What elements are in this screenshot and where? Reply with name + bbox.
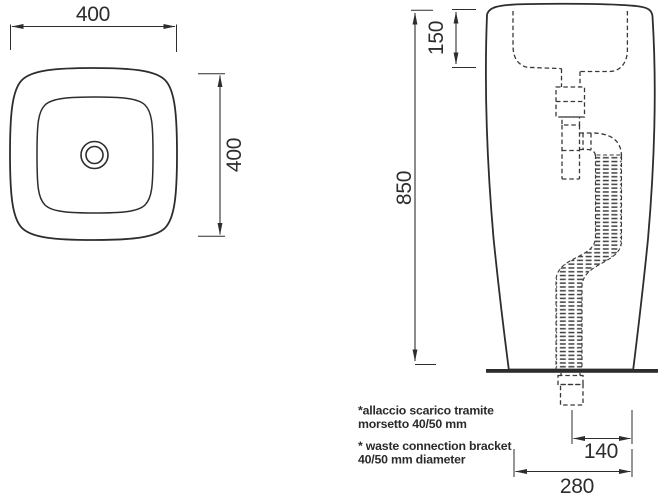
dim-label-width: 400 bbox=[76, 3, 110, 26]
dim-overall-height: 850 bbox=[393, 10, 436, 364]
dim-drain-offset: 140 bbox=[572, 410, 632, 463]
basin-outline bbox=[10, 68, 177, 240]
note-english-line1: * waste connection bracket bbox=[358, 439, 511, 453]
note-italian-line1: *allaccio scarico tramite bbox=[358, 404, 494, 418]
dim-label-base-width: 280 bbox=[560, 475, 594, 498]
notes-block: *allaccio scarico tramite morsetto 40/50… bbox=[358, 404, 511, 467]
dim-label-drain-offset: 140 bbox=[584, 440, 618, 463]
drawing-svg: 400 400 bbox=[0, 0, 667, 500]
dim-label-height: 400 bbox=[223, 138, 246, 172]
top-view: 400 400 bbox=[10, 3, 246, 240]
note-italian-line2: morsetto 40/50 mm bbox=[358, 417, 467, 431]
dim-top-width: 400 bbox=[11, 3, 177, 52]
dim-basin-depth: 150 bbox=[425, 10, 476, 68]
floor-waste-connection bbox=[558, 373, 583, 405]
note-english-line2: 40/50 mm diameter bbox=[358, 453, 466, 467]
dim-label-overall-height: 850 bbox=[393, 171, 416, 205]
dim-label-basin-depth: 150 bbox=[425, 21, 448, 55]
technical-drawing-page: 400 400 bbox=[0, 0, 667, 500]
floor-line bbox=[486, 369, 658, 373]
dim-side-height: 400 bbox=[198, 74, 246, 236]
